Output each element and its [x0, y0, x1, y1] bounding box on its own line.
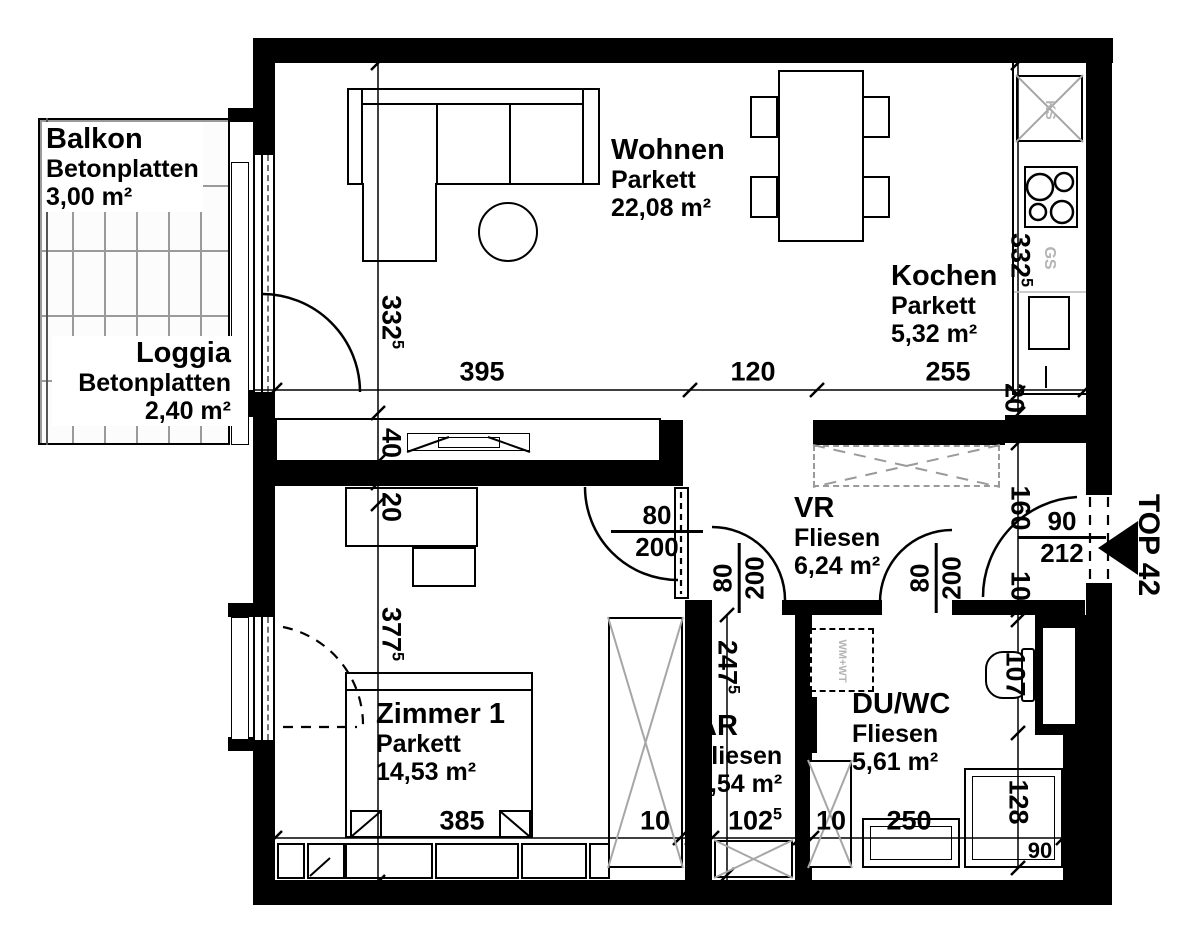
room-label-duwc: DU/WC Fliesen 5,61 m²: [852, 688, 950, 776]
dim-wohnen-depth: 3325: [376, 295, 407, 349]
door-label-entry: 90 212: [1018, 508, 1106, 567]
unit-label: TOP 42: [1131, 494, 1165, 596]
dim-ar-depth: 2475: [712, 640, 743, 694]
wohnen-balcony-window: [253, 155, 275, 392]
room-area: 6,24 m²: [794, 552, 880, 580]
room-floor: Fliesen: [852, 720, 950, 748]
wall-wohnen-zimmer: [253, 460, 683, 486]
door-label-zimmer1: 80 200: [611, 502, 703, 561]
room-label-kochen: Kochen Parkett 5,32 m²: [891, 260, 997, 348]
room-area: 14,53 m²: [376, 758, 505, 786]
room-area: 22,08 m²: [611, 194, 725, 222]
dim-kochen-depth: 3325: [1005, 233, 1036, 287]
door-height: 212: [1018, 540, 1106, 567]
door-width: 90: [1018, 508, 1106, 535]
dining-chair-1: [750, 96, 778, 138]
wall-top: [253, 38, 1113, 63]
room-name: Balkon: [46, 123, 199, 155]
desk-chair: [412, 547, 476, 587]
kitchen-sink: [1028, 296, 1070, 350]
wall-left-bottom: [253, 740, 275, 880]
room-area: 2,40 m²: [56, 397, 231, 425]
room-floor: Betonplatten: [56, 369, 231, 397]
dim-zimmer1-depth: 3775: [376, 607, 407, 661]
room-label-wohnen: Wohnen Parkett 22,08 m²: [611, 134, 725, 222]
room-floor: Parkett: [891, 292, 997, 320]
door-width: 80: [710, 543, 737, 613]
pillow-right: [499, 810, 531, 838]
dim-shower-depth: 128: [1003, 779, 1034, 824]
dining-chair-3: [862, 96, 890, 138]
wall-vr-south-a: [685, 600, 712, 615]
wall-left-mid: [253, 392, 275, 617]
room-area: 3,00 m²: [46, 183, 199, 211]
room-floor: Fliesen: [794, 524, 880, 552]
sofa-body: [347, 88, 600, 185]
dim-wohnen-width: 395: [459, 357, 504, 388]
dim-zimmer1-width: 385: [439, 806, 484, 837]
dim-kochen-width: 255: [925, 357, 970, 388]
wall-right-upper: [1086, 38, 1112, 495]
tv-inner: [438, 437, 500, 448]
zimmer1-window: [253, 617, 275, 740]
wall-vr-south-c: [952, 600, 1085, 615]
room-area: 5,61 m²: [852, 748, 950, 776]
ar-cabinet: [714, 840, 793, 878]
wall-left-top: [253, 38, 275, 155]
room-name: Wohnen: [611, 134, 725, 166]
closet-2: [307, 843, 345, 879]
door-height: 200: [611, 534, 703, 561]
dining-chair-4: [862, 176, 890, 218]
closet-5: [521, 843, 587, 879]
kitchen-counter-edge: [1012, 63, 1014, 395]
closet-1: [277, 843, 305, 879]
room-floor: Betonplatten: [46, 155, 199, 183]
wall-connector-1: [228, 108, 255, 122]
dim-ar-width: 1025: [728, 806, 782, 837]
window-sill-outer-zimmer1: [231, 617, 249, 740]
room-floor: Fliesen: [696, 742, 782, 770]
door-label-duwc: 80 200: [907, 543, 966, 613]
dim-entry-wall: 10: [1005, 571, 1036, 601]
room-name: VR: [794, 492, 880, 524]
dim-passage-width: 120: [730, 357, 775, 388]
room-name: Kochen: [891, 260, 997, 292]
dim-shower-width: 90: [1028, 838, 1052, 864]
dining-chair-2: [750, 176, 778, 218]
room-label-zimmer1: Zimmer 1 Parkett 14,53 m²: [376, 698, 505, 786]
dim-wall-right-of-ar: 10: [816, 806, 846, 837]
wall-bottom: [253, 880, 1063, 905]
side-table-round: [478, 202, 538, 262]
stove: [1024, 166, 1078, 228]
dining-table: [778, 70, 864, 242]
wall-vr-south-b: [782, 600, 882, 615]
pillow-left: [350, 810, 382, 838]
wall-right-below-entry: [1086, 583, 1112, 617]
duct-bar: [803, 697, 817, 753]
door-width: 80: [611, 502, 703, 529]
desk: [345, 487, 478, 547]
room-label-ar: AR Fliesen 2,54 m²: [696, 710, 782, 798]
dim-shelf-depth: 20: [376, 492, 407, 522]
room-name: AR: [696, 710, 782, 742]
closet-4: [435, 843, 519, 879]
room-area: 2,54 m²: [696, 770, 782, 798]
dim-duwc-width: 250: [886, 806, 931, 837]
room-area: 5,32 m²: [891, 320, 997, 348]
vr-wardrobe-dashed: [813, 445, 1000, 487]
room-floor: Parkett: [611, 166, 725, 194]
room-name: DU/WC: [852, 688, 950, 720]
wall-vr-north: [813, 420, 1005, 445]
room-name: Loggia: [56, 337, 231, 369]
closet-3: [345, 843, 433, 879]
door-width: 80: [907, 543, 934, 613]
dim-counter-gap: 20: [999, 383, 1030, 413]
dim-sideboard-depth: 40: [376, 428, 407, 458]
shaft-niche: [1042, 627, 1076, 725]
door-label-ar: 80 200: [710, 543, 769, 613]
wall-kitchen-south: [1005, 415, 1086, 443]
wall-stub-passage: [661, 420, 683, 460]
laundry-label: WM+WT: [836, 639, 848, 682]
door-height: 200: [938, 543, 965, 613]
room-name: Zimmer 1: [376, 698, 505, 730]
fridge-label: KS: [1043, 100, 1059, 119]
sofa-chaise: [362, 183, 437, 262]
wall-connector-3: [228, 603, 255, 617]
dishwasher-label: GS: [1040, 246, 1058, 269]
room-label-loggia: Loggia Betonplatten 2,40 m²: [52, 336, 235, 426]
room-label-balkon: Balkon Betonplatten 3,00 m²: [42, 122, 203, 212]
floor-plan: Balkon Betonplatten 3,00 m² Loggia Beton…: [0, 0, 1200, 952]
room-floor: Parkett: [376, 730, 505, 758]
dim-wall-left-of-ar: 10: [640, 806, 670, 837]
closet-6: [589, 843, 610, 879]
dim-wc-depth: 107: [1000, 651, 1031, 696]
room-label-vr: VR Fliesen 6,24 m²: [794, 492, 880, 580]
door-height: 200: [741, 543, 768, 613]
